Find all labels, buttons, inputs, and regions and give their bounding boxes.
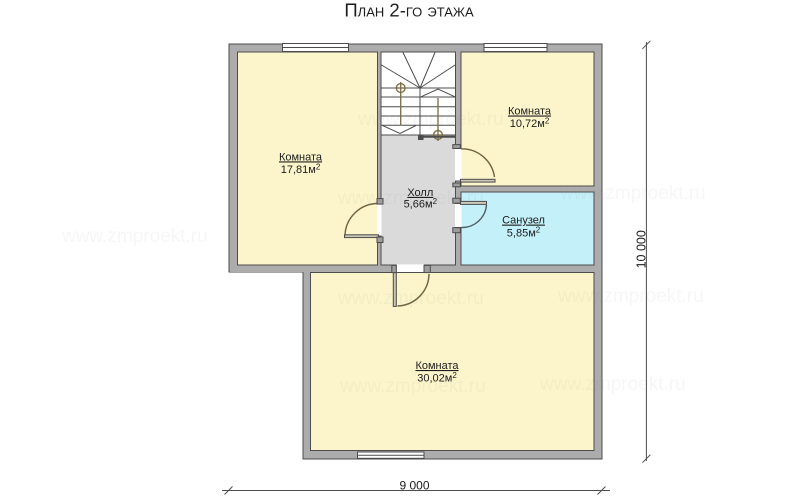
svg-text:Холл: Холл — [407, 187, 433, 199]
svg-text:www.zmproekt.ru: www.zmproekt.ru — [357, 109, 504, 130]
svg-text:План 2-го этажа: План 2-го этажа — [344, 0, 474, 21]
svg-text:10,72м2: 10,72м2 — [510, 117, 550, 131]
svg-text:www.zmproekt.ru: www.zmproekt.ru — [539, 374, 686, 395]
svg-text:30,02м2: 30,02м2 — [417, 371, 457, 385]
svg-text:www.zmproekt.ru: www.zmproekt.ru — [61, 226, 208, 247]
svg-text:www.zmproekt.ru: www.zmproekt.ru — [559, 183, 706, 204]
svg-text:10 000: 10 000 — [634, 230, 648, 268]
svg-text:5,85м2: 5,85м2 — [507, 226, 541, 240]
svg-text:www.zmproekt.ru: www.zmproekt.ru — [557, 286, 704, 307]
svg-text:www.zmproekt.ru: www.zmproekt.ru — [337, 288, 484, 309]
svg-text:9 000: 9 000 — [399, 478, 429, 492]
svg-text:17,81м2: 17,81м2 — [281, 162, 321, 176]
svg-text:5,66м2: 5,66м2 — [404, 197, 438, 211]
svg-text:www.zmproekt.ru: www.zmproekt.ru — [339, 376, 486, 397]
